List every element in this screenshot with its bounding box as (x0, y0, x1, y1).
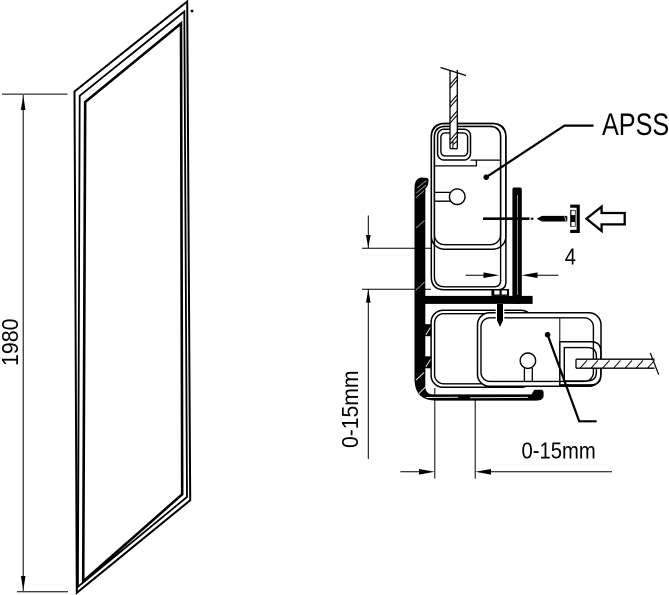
svg-text:4: 4 (565, 243, 576, 270)
svg-text:0-15mm: 0-15mm (522, 437, 596, 464)
svg-text:APSS: APSS (602, 108, 669, 143)
svg-text:1980: 1980 (0, 318, 23, 366)
svg-text:0-15mm: 0-15mm (337, 370, 363, 448)
